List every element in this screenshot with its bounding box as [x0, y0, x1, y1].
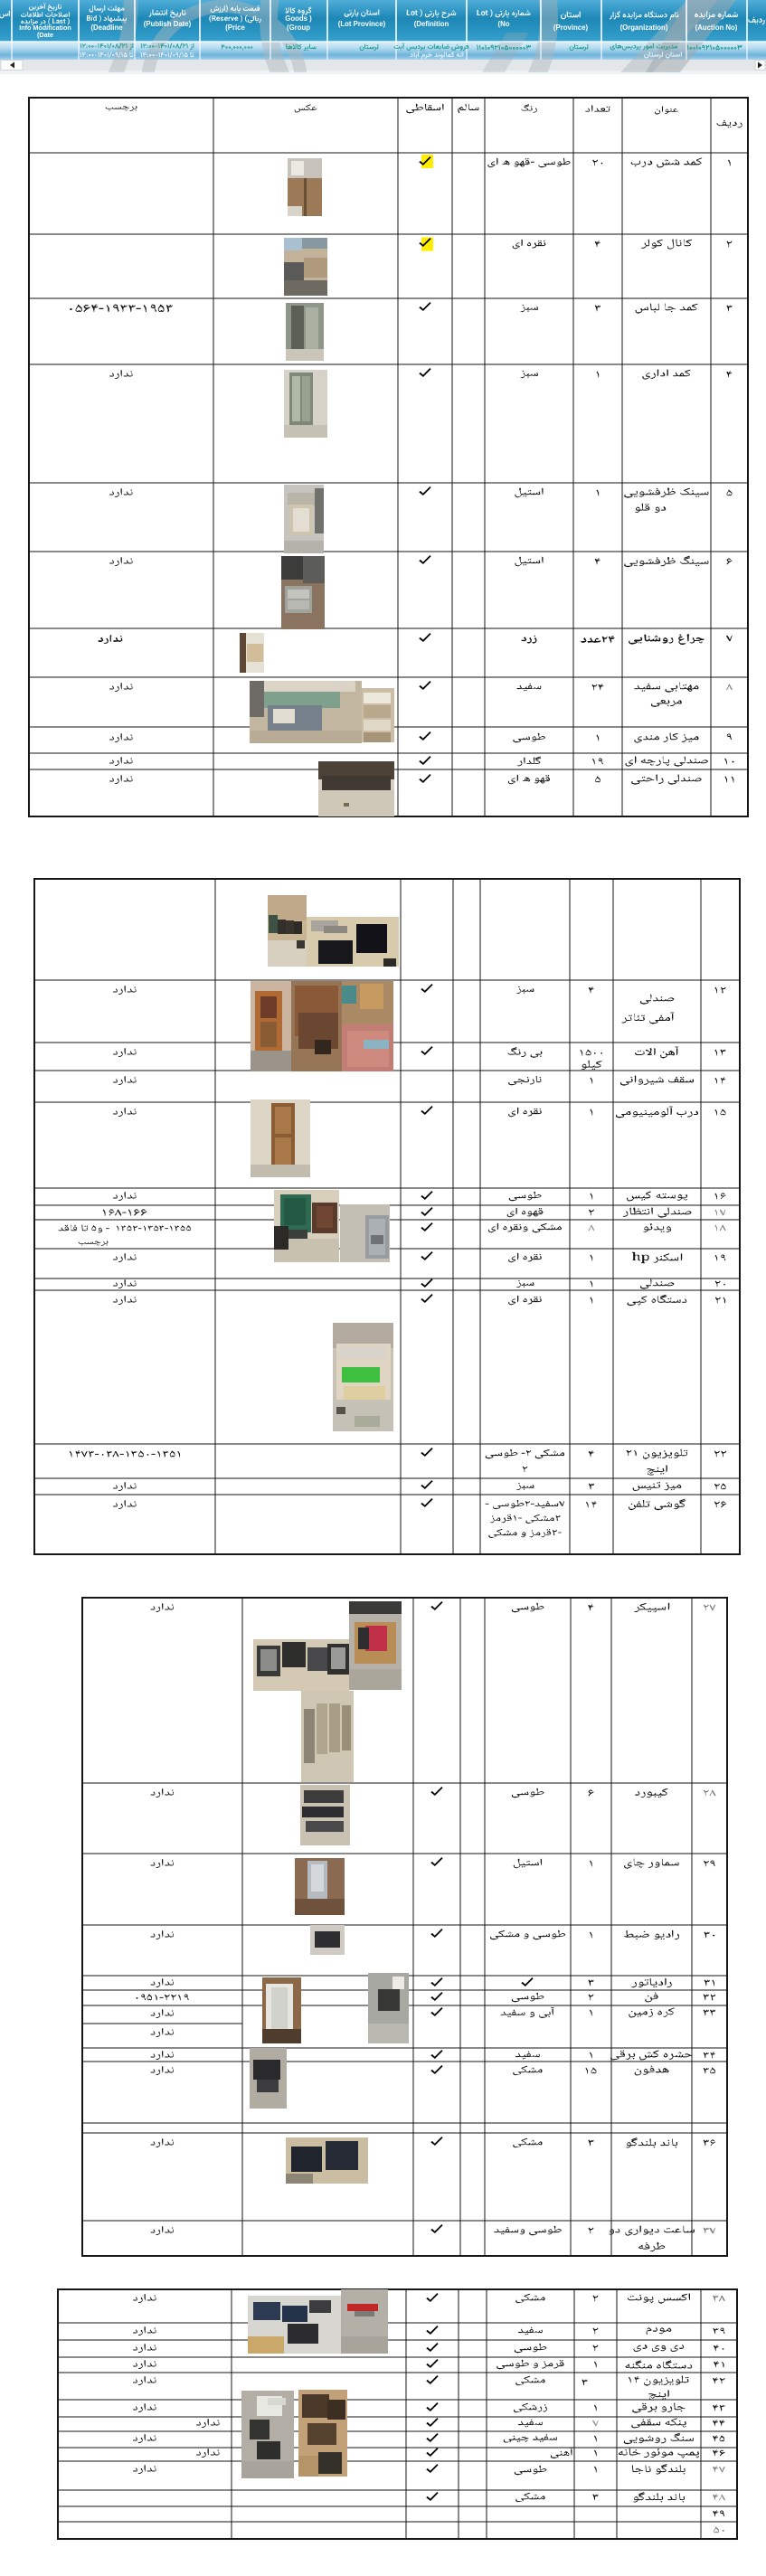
svg-text:(Price: (Price: [225, 24, 245, 32]
svg-text:(Province): (Province): [553, 24, 589, 32]
svg-text:(Auction No): (Auction No): [695, 24, 738, 32]
svg-text:(No: (No: [498, 20, 510, 28]
svg-text:(Organization): (Organization): [620, 24, 668, 32]
svg-text:(Definition: (Definition: [414, 20, 449, 28]
svg-text:Goods ): Goods ): [285, 14, 312, 23]
svg-text:(Date: (Date: [37, 31, 53, 39]
svg-text:(Group: (Group: [287, 24, 310, 32]
svg-text:(Publish Date): (Publish Date): [144, 20, 192, 28]
svg-text:(Deadline: (Deadline: [90, 24, 123, 32]
svg-text:(Lot Province): (Lot Province): [338, 20, 386, 28]
